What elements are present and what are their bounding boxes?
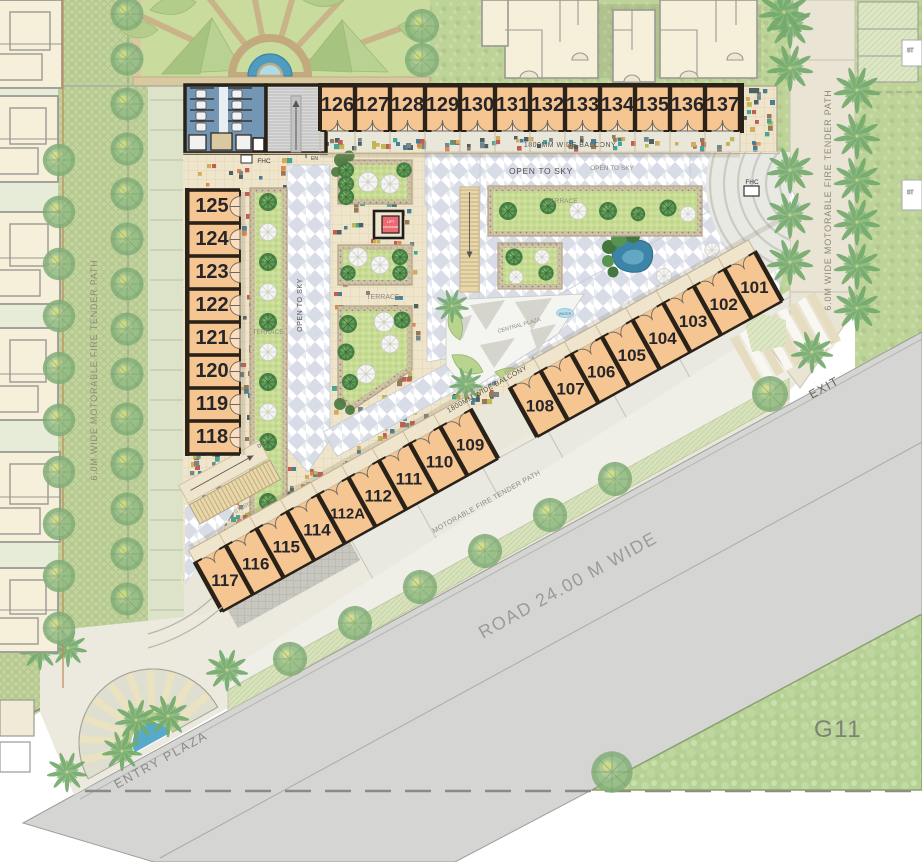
svg-text:6.0M WIDE MOTORABLE FIRE TENDE: 6.0M WIDE MOTORABLE FIRE TENDER PATH bbox=[823, 89, 833, 310]
svg-text:108: 108 bbox=[526, 397, 554, 416]
svg-text:112: 112 bbox=[364, 486, 391, 505]
svg-text:EN: EN bbox=[311, 156, 318, 162]
svg-text:118: 118 bbox=[196, 426, 228, 448]
svg-text:135: 135 bbox=[636, 94, 669, 116]
svg-text:128: 128 bbox=[391, 94, 424, 116]
svg-text:ST: ST bbox=[907, 48, 913, 54]
svg-text:WATER: WATER bbox=[559, 312, 572, 316]
svg-text:126: 126 bbox=[321, 94, 354, 116]
svg-text:1800MM WIDE BALCONY: 1800MM WIDE BALCONY bbox=[524, 142, 616, 149]
svg-text:107: 107 bbox=[556, 380, 584, 399]
svg-text:OPEN TO SKY: OPEN TO SKY bbox=[590, 165, 634, 172]
svg-text:129: 129 bbox=[426, 94, 459, 116]
svg-text:106: 106 bbox=[587, 363, 615, 382]
svg-text:103: 103 bbox=[679, 312, 707, 331]
svg-text:G11: G11 bbox=[814, 716, 862, 743]
svg-text:130: 130 bbox=[461, 94, 494, 116]
svg-text:116: 116 bbox=[242, 554, 269, 573]
svg-text:125: 125 bbox=[195, 195, 228, 217]
svg-text:120: 120 bbox=[195, 360, 228, 382]
svg-text:131: 131 bbox=[496, 94, 529, 116]
svg-text:114: 114 bbox=[303, 520, 331, 539]
svg-text:101: 101 bbox=[740, 278, 768, 297]
svg-text:119: 119 bbox=[196, 393, 228, 415]
svg-text:104: 104 bbox=[648, 329, 677, 348]
svg-text:110: 110 bbox=[426, 452, 453, 471]
svg-text:6.0M WIDE MOTORABLE FIRE TENDE: 6.0M WIDE MOTORABLE FIRE TENDER PATH bbox=[89, 259, 99, 480]
svg-text:102: 102 bbox=[710, 295, 738, 314]
svg-text:136: 136 bbox=[671, 94, 704, 116]
svg-text:OPEN TO SKY: OPEN TO SKY bbox=[509, 166, 573, 176]
svg-text:122: 122 bbox=[195, 294, 228, 316]
svg-text:105: 105 bbox=[618, 346, 646, 365]
svg-text:133: 133 bbox=[566, 94, 599, 116]
svg-text:TERRACE: TERRACE bbox=[546, 198, 578, 205]
svg-text:132: 132 bbox=[531, 94, 564, 116]
svg-text:117: 117 bbox=[211, 571, 238, 590]
svg-text:121: 121 bbox=[195, 327, 228, 349]
svg-text:112A: 112A bbox=[330, 505, 365, 522]
svg-text:134: 134 bbox=[601, 94, 635, 116]
svg-text:137: 137 bbox=[706, 94, 739, 116]
svg-text:TERRACE: TERRACE bbox=[366, 294, 400, 301]
svg-text:124: 124 bbox=[195, 228, 229, 250]
svg-text:OPEN TO SKY: OPEN TO SKY bbox=[297, 278, 304, 332]
svg-text:FHC: FHC bbox=[745, 179, 759, 186]
svg-text:111: 111 bbox=[396, 469, 423, 488]
svg-text:123: 123 bbox=[195, 261, 228, 283]
svg-text:127: 127 bbox=[356, 94, 389, 116]
svg-text:115: 115 bbox=[273, 537, 300, 556]
svg-text:LIFT: LIFT bbox=[387, 220, 395, 224]
svg-text:1950X2000: 1950X2000 bbox=[383, 225, 399, 229]
svg-text:ST: ST bbox=[907, 190, 913, 196]
svg-text:FHC: FHC bbox=[257, 158, 271, 165]
svg-text:109: 109 bbox=[456, 435, 484, 454]
svg-text:TERRACE: TERRACE bbox=[252, 329, 284, 336]
